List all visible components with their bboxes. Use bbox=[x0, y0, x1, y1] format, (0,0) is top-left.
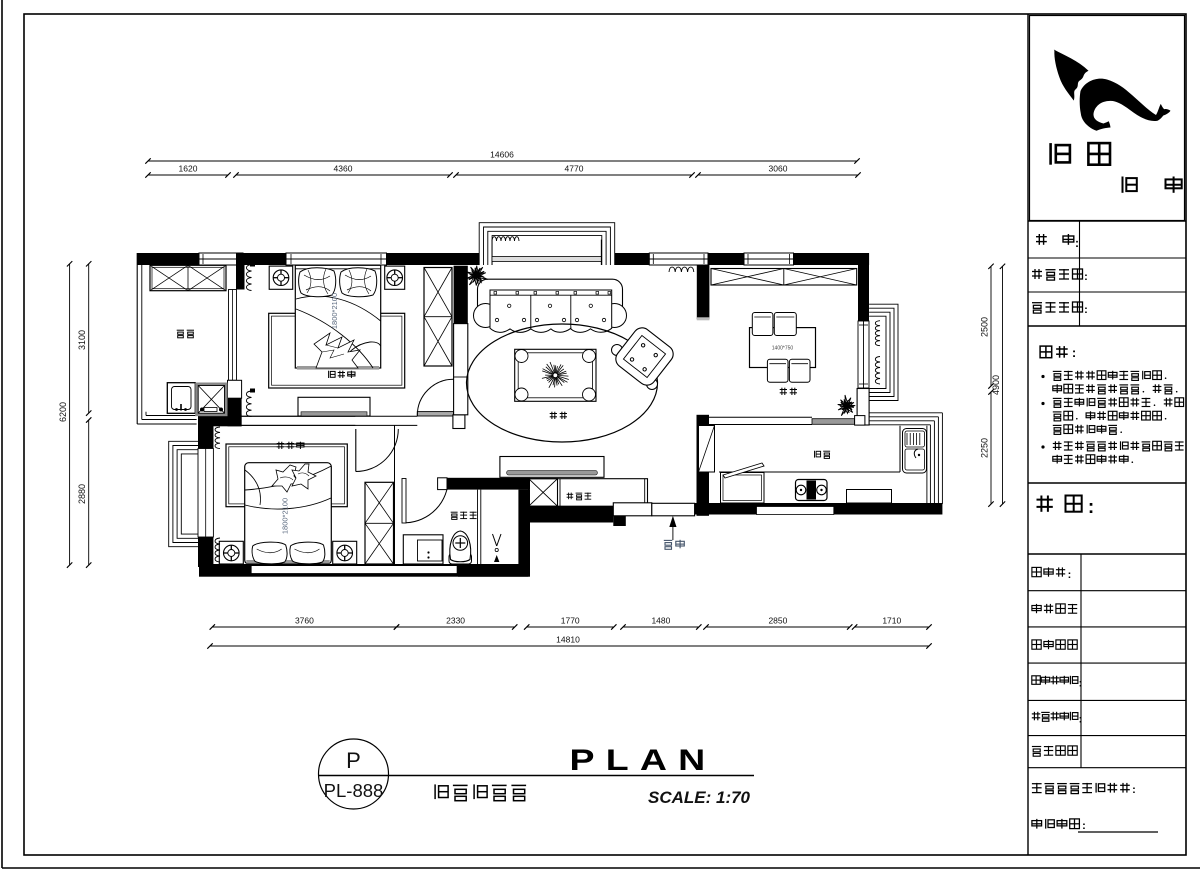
svg-text::: : bbox=[1084, 304, 1088, 316]
svg-text:1800*2100: 1800*2100 bbox=[281, 498, 290, 534]
svg-text::: : bbox=[1079, 714, 1083, 726]
svg-text::: : bbox=[1132, 784, 1136, 796]
svg-text:P: P bbox=[346, 748, 361, 773]
svg-text:4360: 4360 bbox=[334, 164, 353, 174]
svg-text:2330: 2330 bbox=[446, 616, 465, 626]
svg-text::: : bbox=[1084, 271, 1088, 283]
svg-text:14810: 14810 bbox=[556, 635, 580, 645]
svg-text:6200: 6200 bbox=[58, 402, 68, 422]
svg-text:1770: 1770 bbox=[561, 616, 580, 626]
svg-text::: : bbox=[1068, 569, 1072, 581]
svg-text:1710: 1710 bbox=[882, 616, 901, 626]
svg-text:SCALE: 1:70: SCALE: 1:70 bbox=[648, 788, 751, 807]
svg-text::: : bbox=[1088, 497, 1094, 518]
svg-text:1620: 1620 bbox=[179, 164, 198, 174]
svg-text:3760: 3760 bbox=[295, 616, 314, 626]
svg-text:1480: 1480 bbox=[651, 616, 670, 626]
svg-text:4770: 4770 bbox=[565, 164, 584, 174]
svg-text:3100: 3100 bbox=[77, 330, 87, 350]
svg-text::: : bbox=[1075, 236, 1079, 250]
svg-text:PLAN: PLAN bbox=[569, 743, 716, 777]
svg-text::: : bbox=[1072, 345, 1076, 360]
svg-text:14606: 14606 bbox=[490, 150, 514, 160]
svg-text:1800*2100: 1800*2100 bbox=[330, 293, 339, 329]
svg-text:1400*750: 1400*750 bbox=[772, 346, 794, 352]
svg-text:2850: 2850 bbox=[768, 616, 787, 626]
svg-text:PL-888: PL-888 bbox=[324, 780, 384, 801]
svg-text:2880: 2880 bbox=[77, 484, 87, 504]
svg-text:2500: 2500 bbox=[980, 317, 990, 337]
svg-text:3060: 3060 bbox=[769, 164, 788, 174]
svg-text::: : bbox=[1079, 678, 1083, 690]
svg-text::: : bbox=[1082, 820, 1086, 832]
svg-text:4900: 4900 bbox=[991, 375, 1001, 395]
svg-text:2250: 2250 bbox=[980, 438, 990, 458]
